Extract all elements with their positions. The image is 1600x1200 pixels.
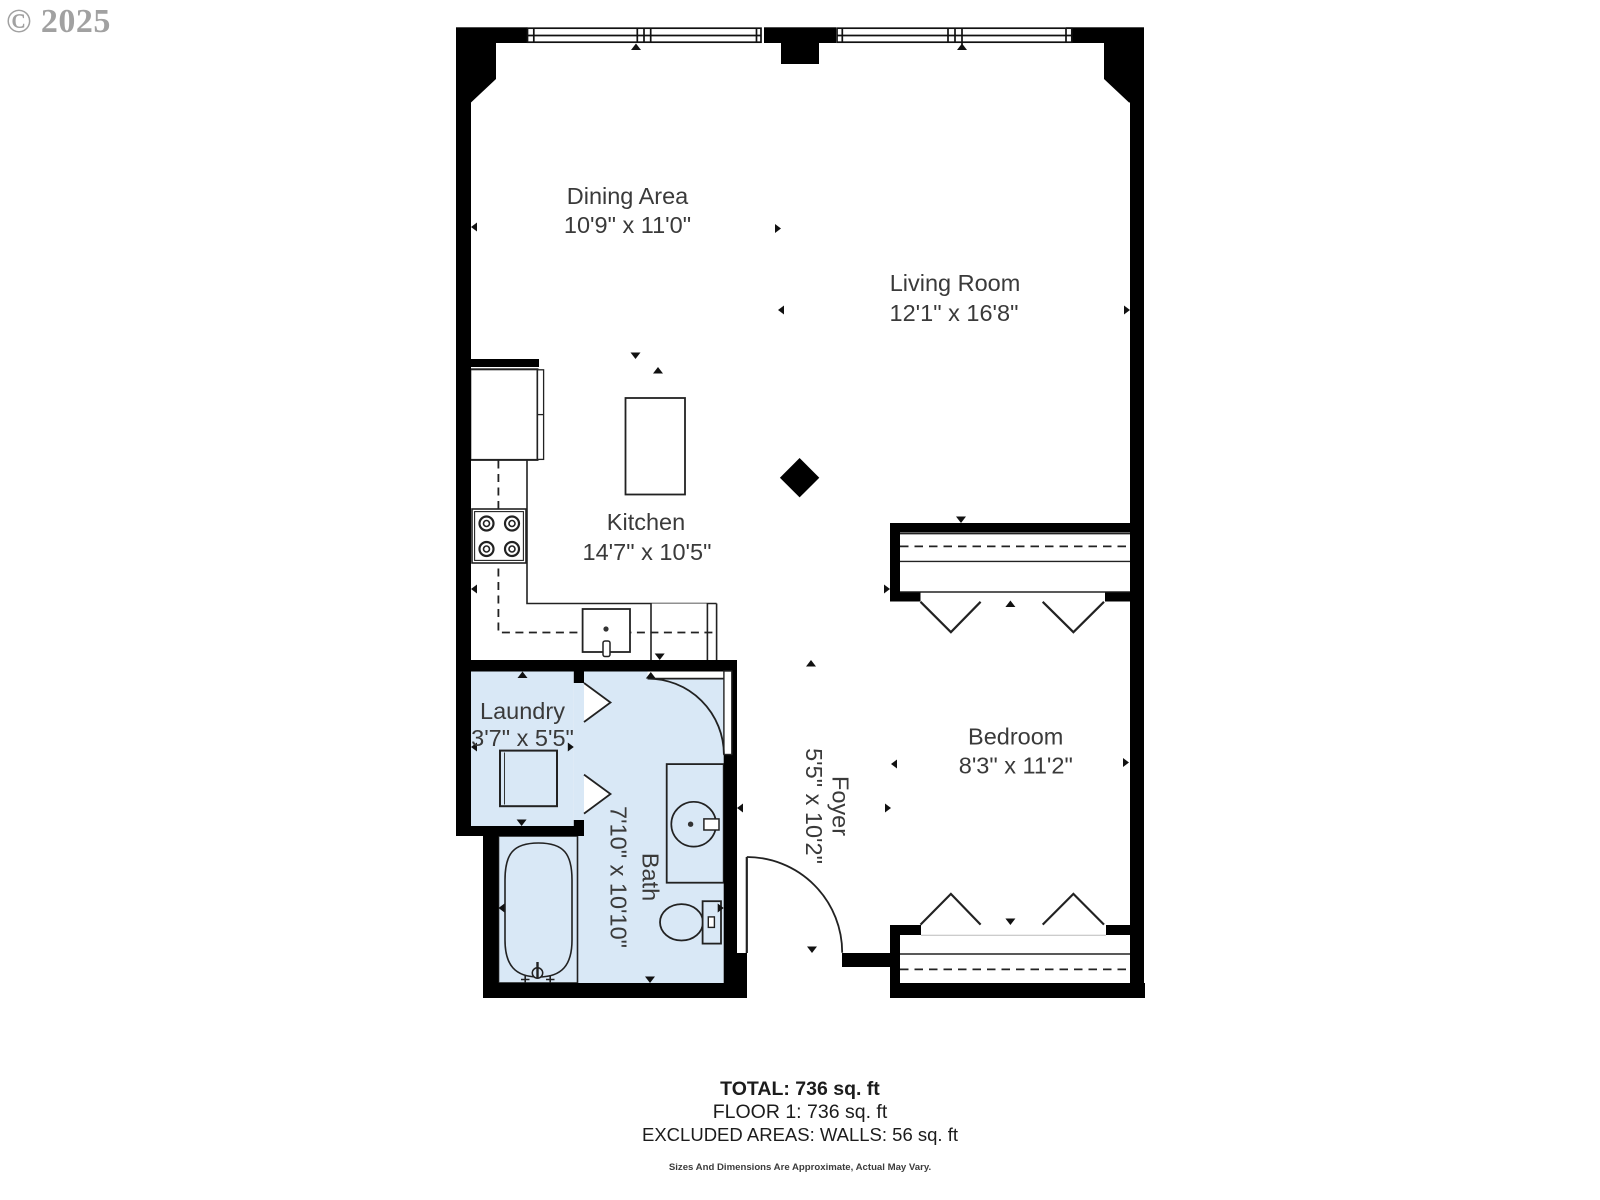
svg-text:Laundry: Laundry [480, 698, 565, 724]
svg-text:Foyer: Foyer [828, 776, 854, 836]
svg-text:Bedroom: Bedroom [968, 724, 1063, 750]
svg-text:Dining Area: Dining Area [567, 183, 689, 209]
svg-text:10'9" x 11'0": 10'9" x 11'0" [564, 212, 691, 238]
svg-text:Kitchen: Kitchen [607, 509, 685, 535]
svg-text:3'7" x 5'5": 3'7" x 5'5" [471, 725, 574, 751]
svg-text:TOTAL: 736 sq. ft: TOTAL: 736 sq. ft [720, 1078, 880, 1100]
svg-text:FLOOR 1: 736 sq. ft: FLOOR 1: 736 sq. ft [713, 1101, 888, 1123]
svg-text:8'3" x 11'2": 8'3" x 11'2" [959, 753, 1073, 779]
svg-text:© 2025: © 2025 [6, 3, 111, 40]
svg-text:Sizes And Dimensions Are Appro: Sizes And Dimensions Are Approximate, Ac… [669, 1162, 931, 1173]
svg-text:12'1" x 16'8": 12'1" x 16'8" [890, 300, 1019, 326]
svg-text:EXCLUDED AREAS: WALLS: 56 sq.: EXCLUDED AREAS: WALLS: 56 sq. ft [642, 1124, 958, 1145]
svg-text:Bath: Bath [638, 853, 664, 901]
svg-text:7'10" x 10'10": 7'10" x 10'10" [606, 806, 632, 948]
svg-text:Living Room: Living Room [890, 270, 1021, 296]
svg-text:5'5" x 10'2": 5'5" x 10'2" [801, 748, 827, 864]
svg-text:14'7" x 10'5": 14'7" x 10'5" [583, 539, 712, 565]
